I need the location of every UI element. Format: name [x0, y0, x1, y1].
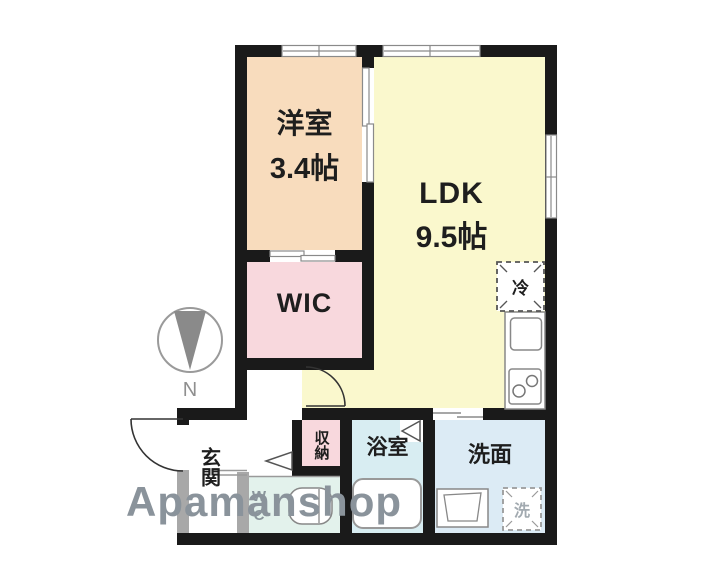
window-ldk-top	[383, 46, 480, 57]
washroom-label: 洗面	[435, 438, 545, 468]
sliding-door-wic	[270, 251, 335, 261]
ldk-floor-extension	[302, 370, 374, 408]
compass-north-icon	[158, 308, 222, 372]
floorplan: 洋室 3.4帖 LDK 9.5帖 WIC 玄関 収納 浴室 洗面 W C 冷 洗…	[0, 0, 720, 576]
washbasin-icon	[437, 489, 488, 527]
storage-label: 収納	[312, 424, 330, 466]
watermark: Apamanshop	[126, 481, 402, 523]
ldk-label: LDK	[374, 176, 529, 212]
kitchen-counter	[505, 312, 545, 409]
western-room-area: 3.4帖	[247, 146, 362, 186]
compass-label: N	[176, 378, 204, 402]
washing-machine-label: 洗	[503, 488, 541, 530]
bathroom-label: 浴室	[352, 432, 423, 460]
door-arc-entrance	[131, 419, 183, 471]
window-ldk-right	[546, 135, 557, 218]
window-west-top	[282, 46, 356, 57]
kitchen-sink-icon	[511, 318, 542, 350]
refrigerator-label: 冷	[497, 262, 544, 311]
stove-icon	[509, 369, 541, 404]
wc-door-icon	[266, 452, 292, 470]
western-room-label: 洋室	[247, 104, 362, 140]
wic-label: WIC	[247, 286, 362, 320]
sliding-door-west-ldk	[363, 68, 374, 182]
sliding-door-washroom	[433, 413, 483, 417]
ldk-area: 9.5帖	[374, 214, 529, 254]
